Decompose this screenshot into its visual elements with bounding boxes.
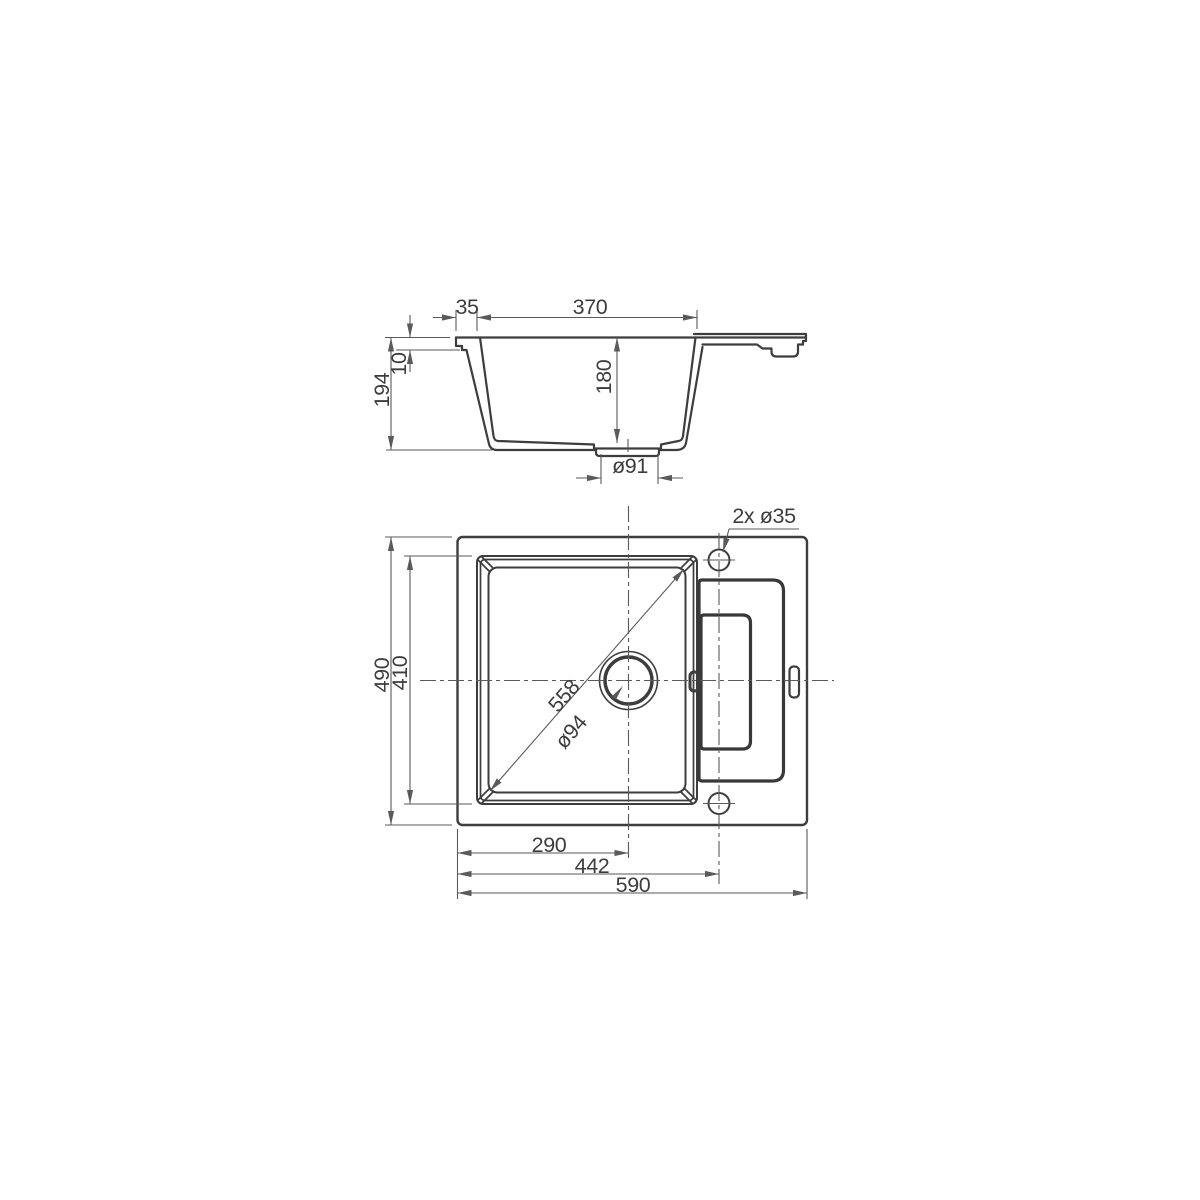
dim-label-bowl-depth: 180: [592, 359, 616, 394]
dim-label-rim-depth: 10: [387, 352, 411, 376]
dim-label-drain-recess-diameter: ø91: [612, 454, 648, 478]
dim-label-bowl-width: 370: [573, 295, 608, 319]
dim-label-tap-center-from-left: 442: [575, 854, 610, 878]
dim-label-tap-holes: 2x ø35: [732, 504, 796, 528]
dim-label-overall-width: 590: [616, 873, 651, 897]
dim-label-offset-left: 35: [455, 295, 479, 319]
page-background: [0, 0, 1200, 1200]
dim-label-bowl-outer-depth: 410: [388, 655, 412, 690]
dim-label-drain-center-from-left: 290: [532, 833, 567, 857]
dim-label-total-depth: 194: [370, 372, 394, 407]
technical-drawing-canvas: 35 370 10 194 180 ø91: [0, 0, 1200, 1200]
